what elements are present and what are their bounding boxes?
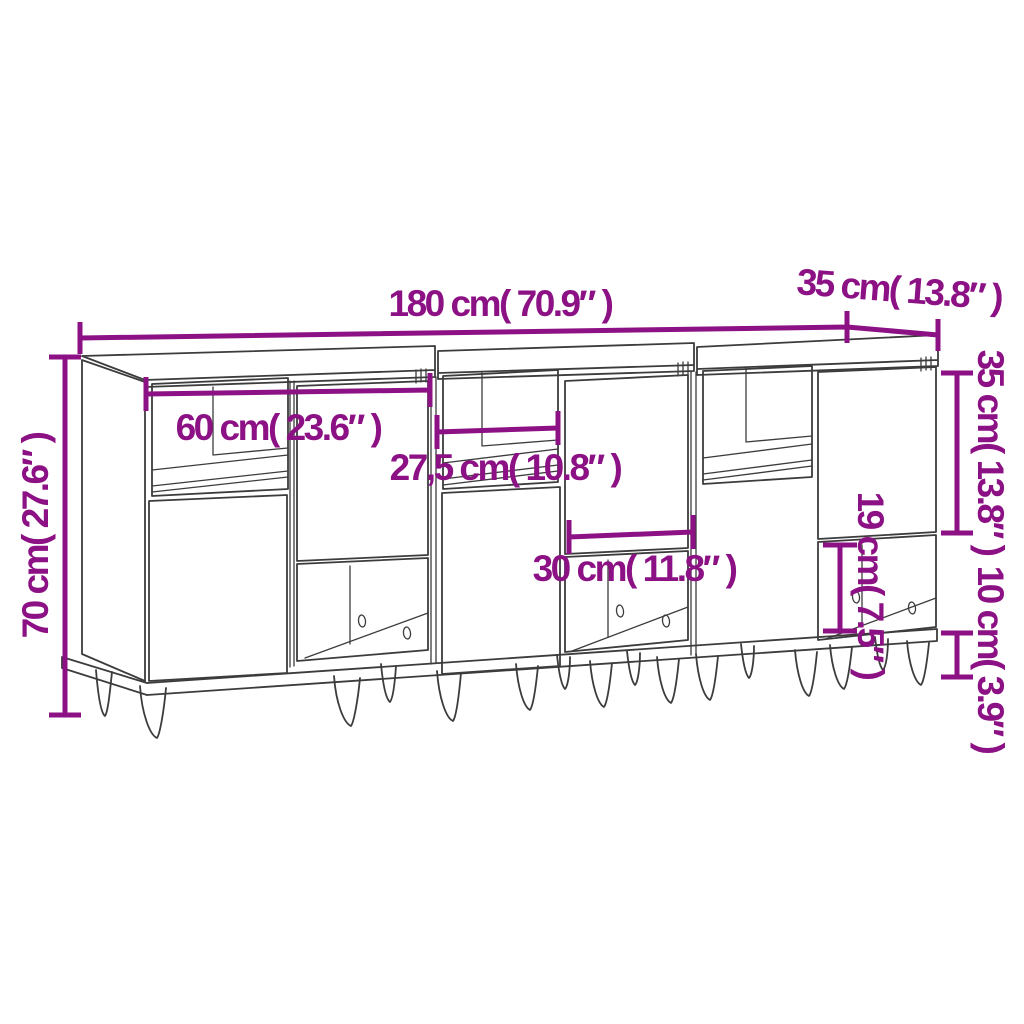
furniture-dimension-diagram: 180 cm( 70.9″ ) 35 cm( 13.8″ ) 70 cm( 27…	[0, 0, 1024, 1024]
dimension-total-height-label: 70 cm( 27.6″ )	[15, 432, 56, 638]
dimension-leg-height-label: 10 cm( 3.9″ )	[970, 566, 1011, 754]
dimension-diagram-page: 180 cm( 70.9″ ) 35 cm( 13.8″ ) 70 cm( 27…	[0, 0, 1024, 1024]
dimension-open-shelf-width-label: 27,5 cm( 10.8″ )	[390, 447, 622, 488]
dimension-door-width-label: 30 cm( 11.8″ )	[533, 548, 737, 589]
dimension-open-compartment-height-label: 19 cm( 7.5″ )	[850, 492, 891, 680]
dimension-total-width-label: 180 cm( 70.9″ )	[389, 283, 613, 324]
dimension-unit-width-label: 60 cm( 23.6″ )	[176, 407, 382, 448]
dimension-door-height-label: 35 cm( 13.8″ )	[970, 350, 1011, 556]
